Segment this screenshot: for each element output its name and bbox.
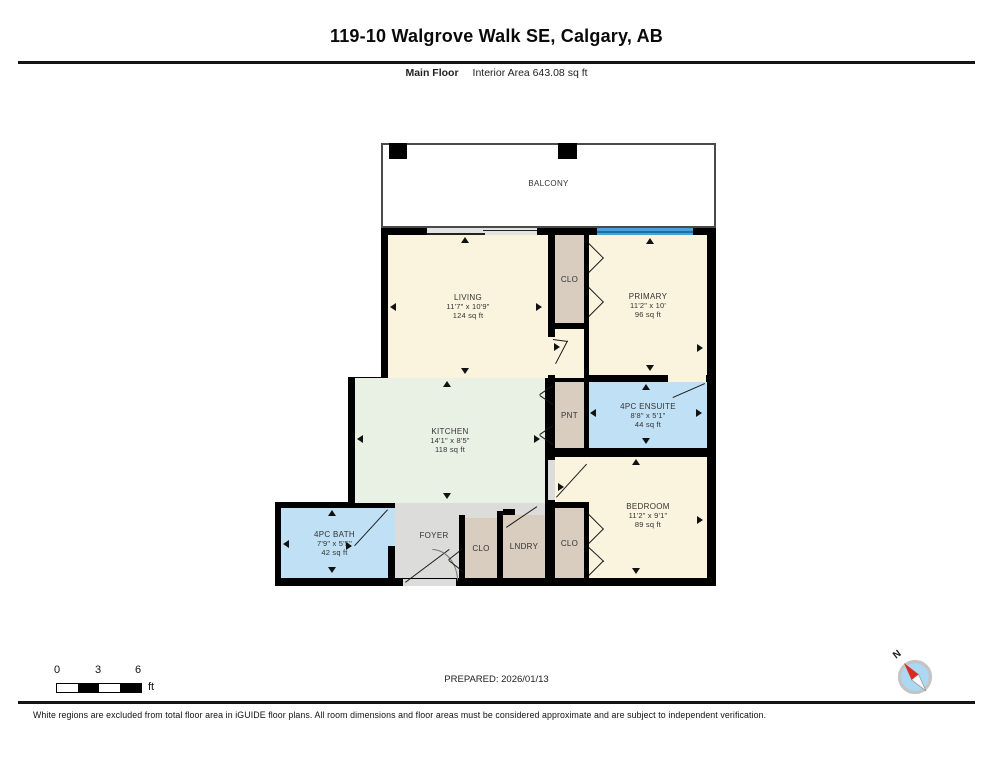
dimension-arrow <box>534 435 540 443</box>
dimension-arrow <box>328 567 336 573</box>
dimension-arrow <box>390 303 396 311</box>
dimension-arrow <box>536 303 542 311</box>
dimension-arrow <box>283 540 289 548</box>
room-kitchen <box>355 378 545 503</box>
room-living <box>388 235 548 378</box>
dimension-arrow <box>646 365 654 371</box>
room-primary <box>589 235 707 375</box>
dimension-arrow <box>554 343 560 351</box>
dimension-arrow <box>642 438 650 444</box>
footer-divider <box>18 701 975 704</box>
dimension-arrow <box>697 344 703 352</box>
compass: N <box>889 646 941 702</box>
prepared-date: PREPARED: 2026/01/13 <box>0 674 993 685</box>
dimension-arrow <box>632 459 640 465</box>
dimension-arrow <box>443 381 451 387</box>
dimension-arrow <box>346 542 352 550</box>
balcony-pillar <box>558 143 577 159</box>
door-opening <box>548 460 555 500</box>
dimension-arrow <box>443 493 451 499</box>
dimension-arrow <box>461 368 469 374</box>
dimension-arrow <box>697 516 703 524</box>
room-closet-bedroom <box>555 508 584 578</box>
sliding-door-panel <box>427 233 485 235</box>
room-pantry <box>555 382 584 448</box>
dimension-arrow <box>696 409 702 417</box>
room-bedroom <box>589 502 707 578</box>
dimension-arrow <box>642 384 650 390</box>
dimension-arrow <box>558 483 564 491</box>
sliding-door-panel <box>483 230 537 232</box>
compass-north-label: N <box>891 648 903 661</box>
dimension-arrow <box>357 435 363 443</box>
dimension-arrow <box>632 568 640 574</box>
door-opening <box>388 508 395 546</box>
window-line <box>597 231 693 233</box>
balcony-outline: BALCONY <box>381 143 716 228</box>
floor-plan: BALCONY LIVING11'7" x 10'9"124 sq ftCLOP… <box>0 0 993 768</box>
dimension-arrow <box>590 409 596 417</box>
disclaimer-text: White regions are excluded from total fl… <box>33 710 766 720</box>
wall-segment <box>503 509 515 515</box>
dimension-arrow <box>461 237 469 243</box>
wall-segment <box>497 511 503 578</box>
dimension-arrow <box>328 510 336 516</box>
balcony-pillar <box>389 143 407 159</box>
room-closet-foyer <box>465 518 497 578</box>
dimension-arrow <box>646 238 654 244</box>
room-label-balcony: BALCONY <box>383 179 714 188</box>
room-closet-primary <box>555 235 584 323</box>
door-opening <box>668 375 706 382</box>
room-bedroom-hall <box>555 457 707 502</box>
floorplan-page: 119-10 Walgrove Walk SE, Calgary, AB Mai… <box>0 0 993 768</box>
